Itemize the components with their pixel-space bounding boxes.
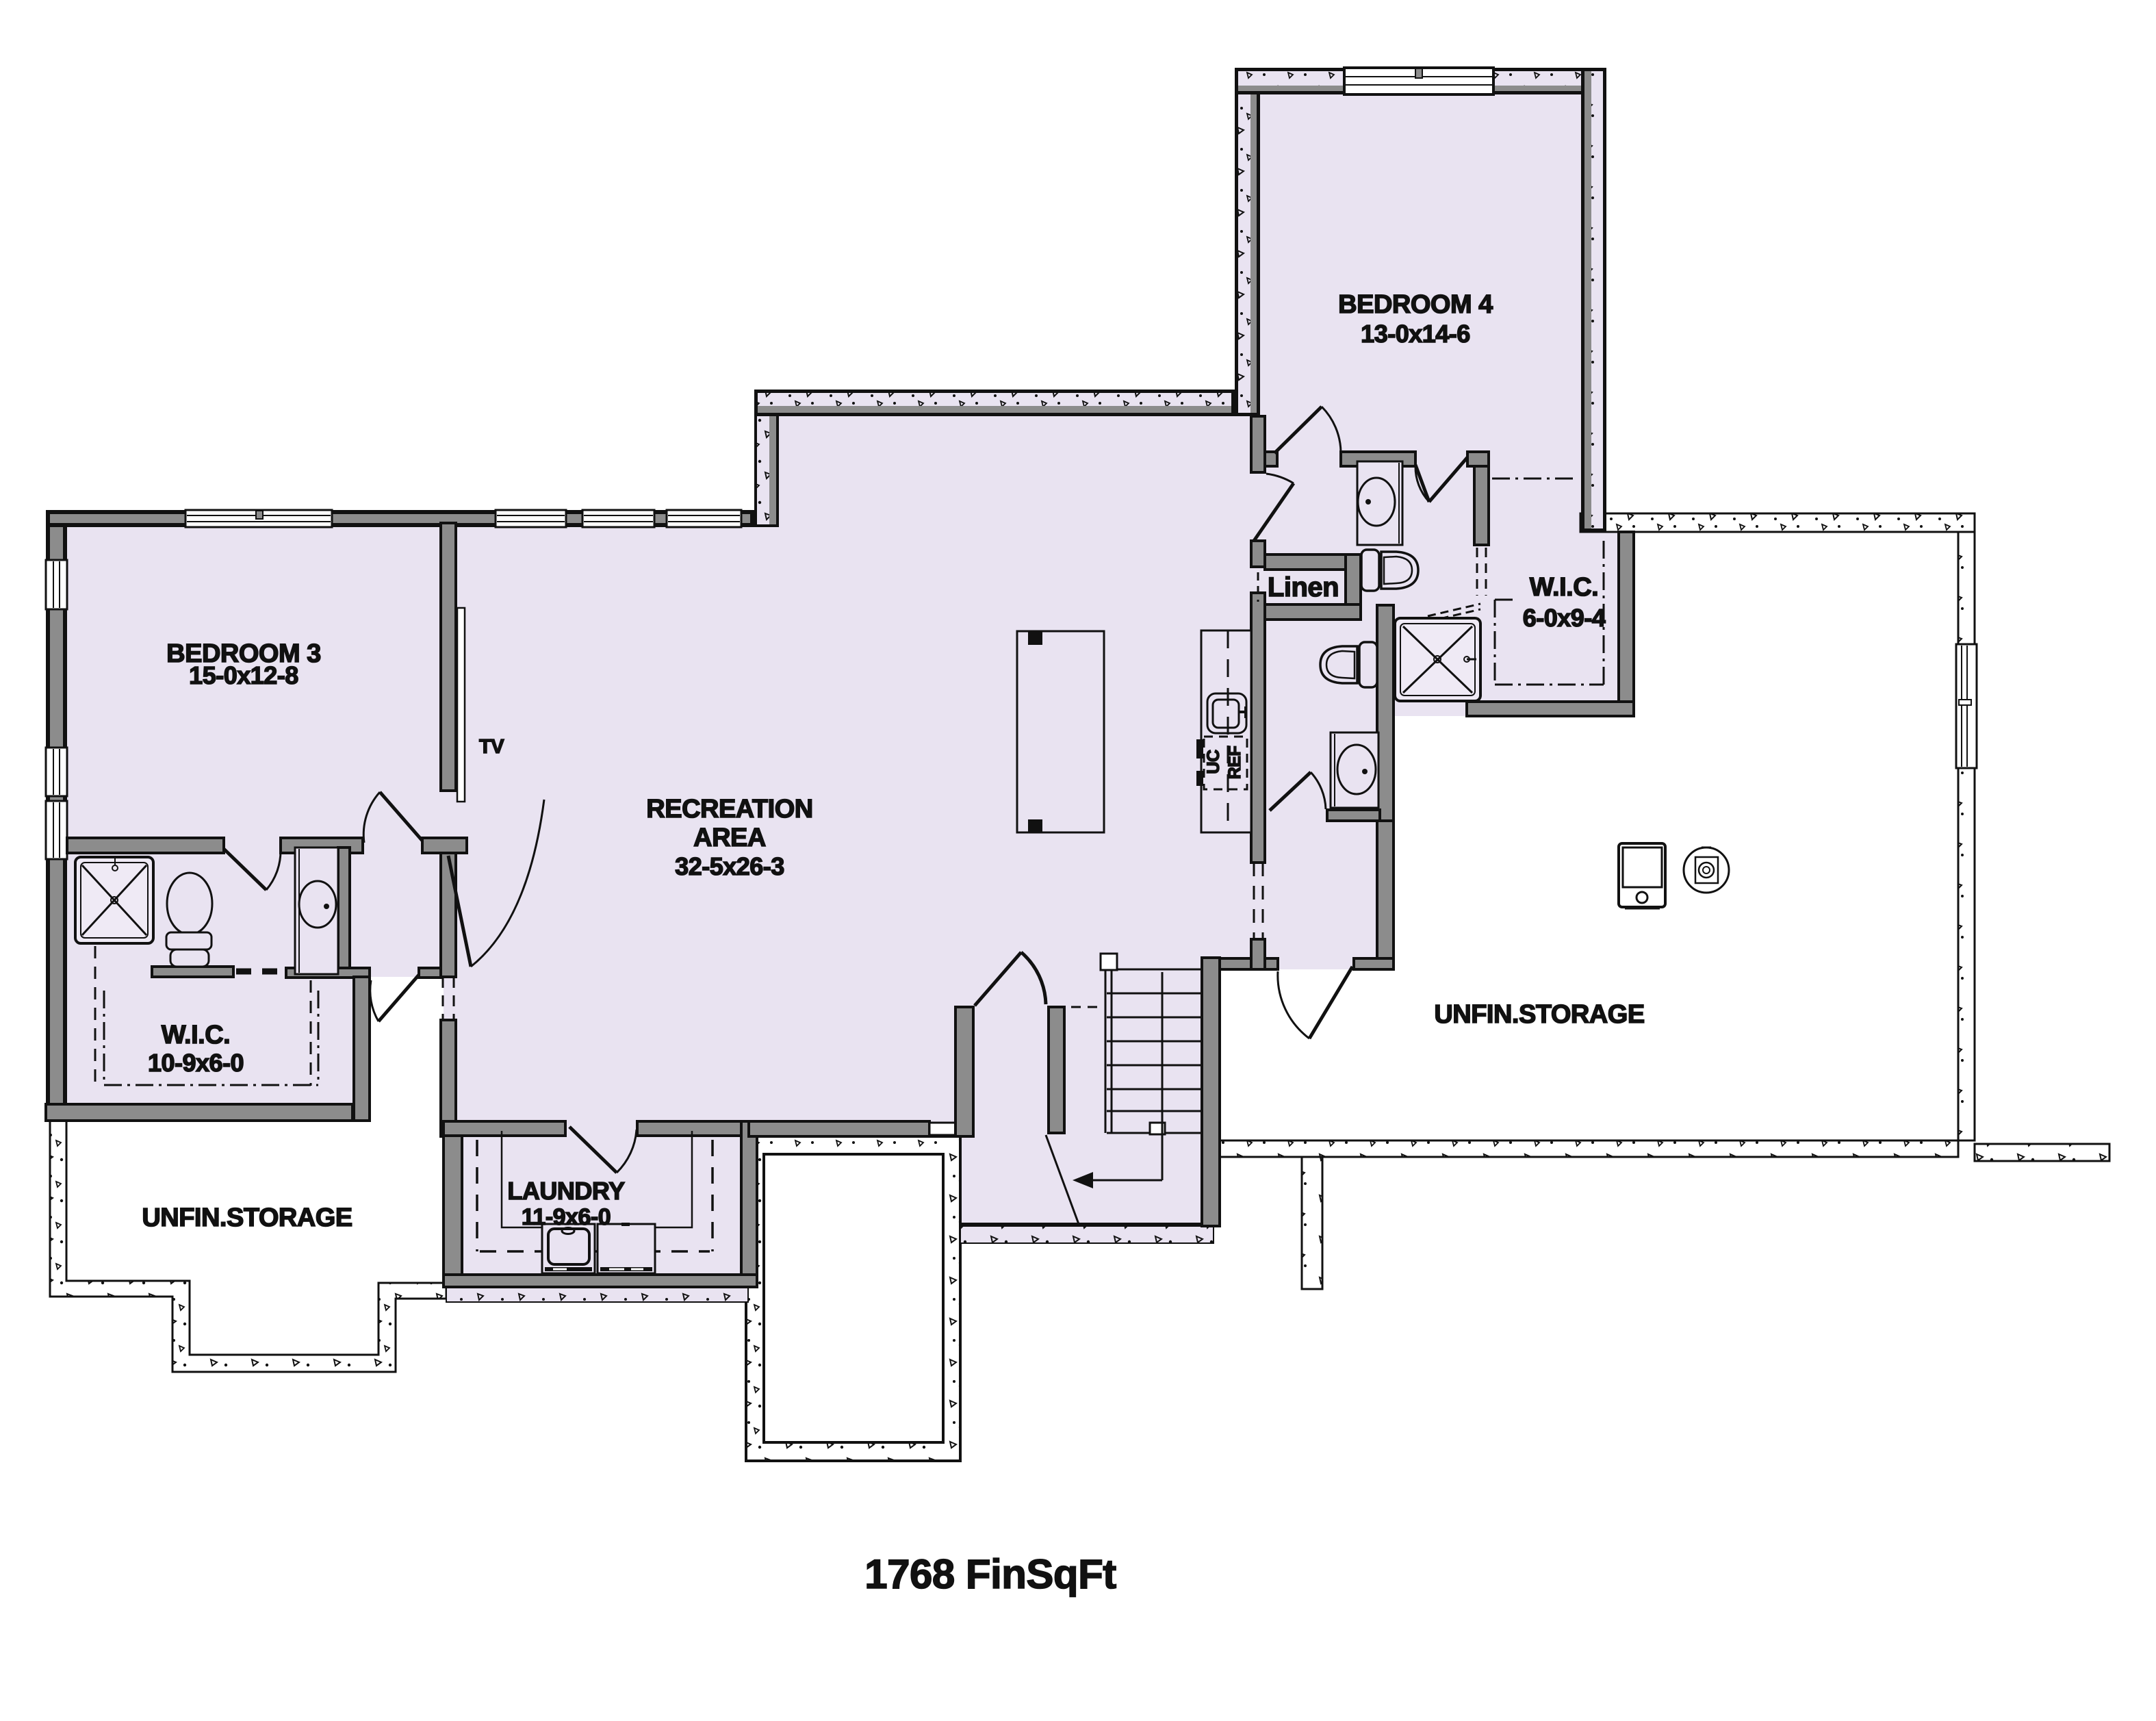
svg-text:32-5x26-3: 32-5x26-3: [675, 852, 784, 880]
svg-text:W.I.C.: W.I.C.: [1530, 573, 1598, 602]
svg-text:10-9x6-0: 10-9x6-0: [148, 1049, 244, 1077]
svg-text:LAUNDRY: LAUNDRY: [507, 1177, 625, 1205]
svg-text:1768 FinSqFt: 1768 FinSqFt: [864, 1551, 1116, 1597]
svg-text:6-0x9-4: 6-0x9-4: [1523, 604, 1606, 632]
svg-text:15-0x12-8: 15-0x12-8: [189, 661, 298, 689]
svg-text:AREA: AREA: [693, 824, 766, 852]
svg-text:UNFIN.STORAGE: UNFIN.STORAGE: [1434, 1000, 1644, 1029]
svg-text:REF: REF: [1225, 746, 1244, 780]
svg-text:BEDROOM 4: BEDROOM 4: [1338, 290, 1493, 319]
svg-text:TV: TV: [479, 736, 504, 758]
svg-text:UC: UC: [1204, 750, 1223, 774]
svg-text:Linen: Linen: [1268, 572, 1339, 602]
svg-text:UNFIN.STORAGE: UNFIN.STORAGE: [142, 1203, 352, 1232]
svg-text:11-9x6-0: 11-9x6-0: [522, 1204, 611, 1230]
svg-text:RECREATION: RECREATION: [646, 795, 812, 824]
svg-text:W.I.C.: W.I.C.: [162, 1021, 230, 1049]
svg-text:13-0x14-6: 13-0x14-6: [1361, 320, 1470, 348]
